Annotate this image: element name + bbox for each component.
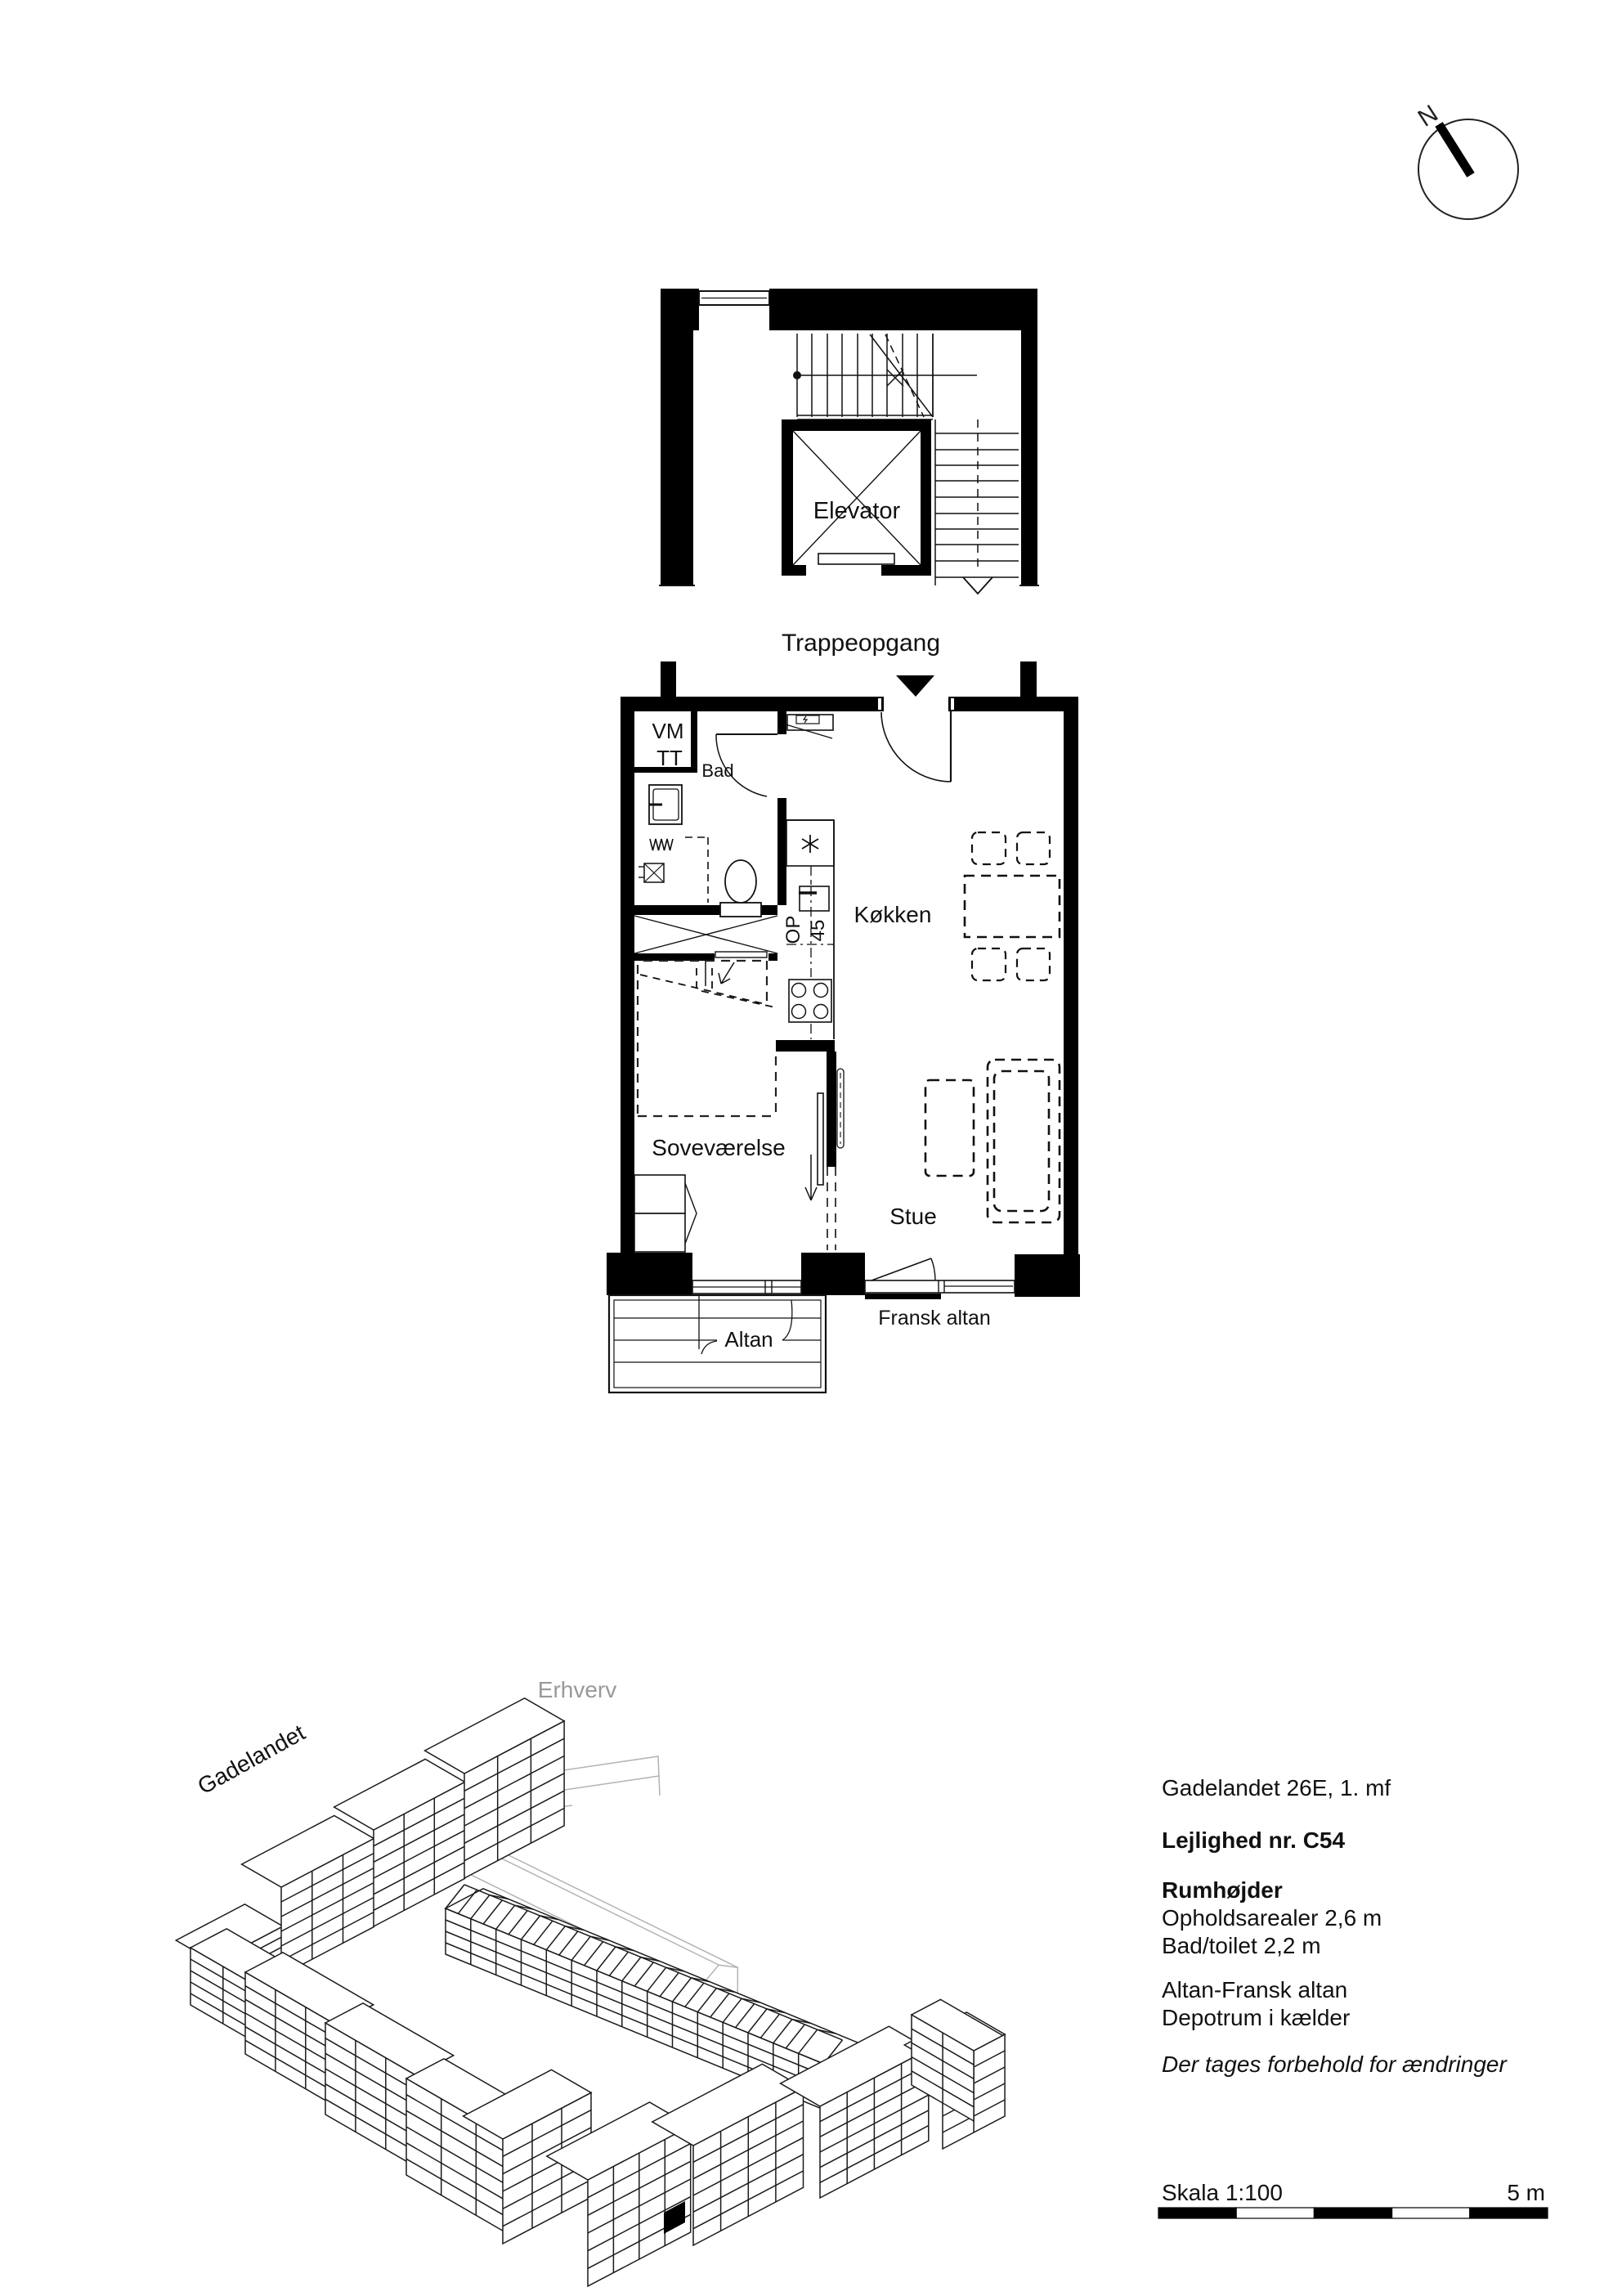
svg-text:Der tages forbehold for ændrin: Der tages forbehold for ændringer (1162, 2052, 1508, 2077)
svg-text:VM: VM (652, 719, 684, 743)
svg-text:Opholdsarealer 2,6 m: Opholdsarealer 2,6 m (1162, 1905, 1382, 1931)
svg-text:45: 45 (807, 920, 829, 942)
svg-text:Altan-Fransk altan: Altan-Fransk altan (1162, 1977, 1347, 2002)
svg-text:Køkken: Køkken (854, 902, 932, 927)
svg-text:Stue: Stue (889, 1204, 937, 1229)
svg-text:Bad/toilet 2,2 m: Bad/toilet 2,2 m (1162, 1933, 1321, 1958)
svg-text:Depotrum i kælder: Depotrum i kælder (1162, 2005, 1350, 2030)
svg-text:Bad: Bad (701, 760, 733, 781)
svg-text:TT: TT (656, 746, 683, 770)
svg-text:Trappeopgang: Trappeopgang (782, 630, 940, 657)
svg-text:5 m: 5 m (1507, 2180, 1545, 2205)
svg-text:OP: OP (782, 916, 804, 944)
svg-text:Soveværelse: Soveværelse (652, 1135, 785, 1160)
svg-text:Elevator: Elevator (813, 498, 901, 524)
svg-text:Erhverv: Erhverv (538, 1677, 616, 1702)
svg-text:Lejlighed nr. C54: Lejlighed nr. C54 (1162, 1827, 1345, 1853)
svg-text:Gadelandet 26E, 1. mf: Gadelandet 26E, 1. mf (1162, 1775, 1391, 1800)
svg-text:Skala 1:100: Skala 1:100 (1162, 2180, 1283, 2205)
svg-text:Altan: Altan (724, 1327, 773, 1352)
svg-text:Fransk altan: Fransk altan (878, 1307, 991, 1330)
svg-text:Rumhøjder: Rumhøjder (1162, 1877, 1283, 1903)
